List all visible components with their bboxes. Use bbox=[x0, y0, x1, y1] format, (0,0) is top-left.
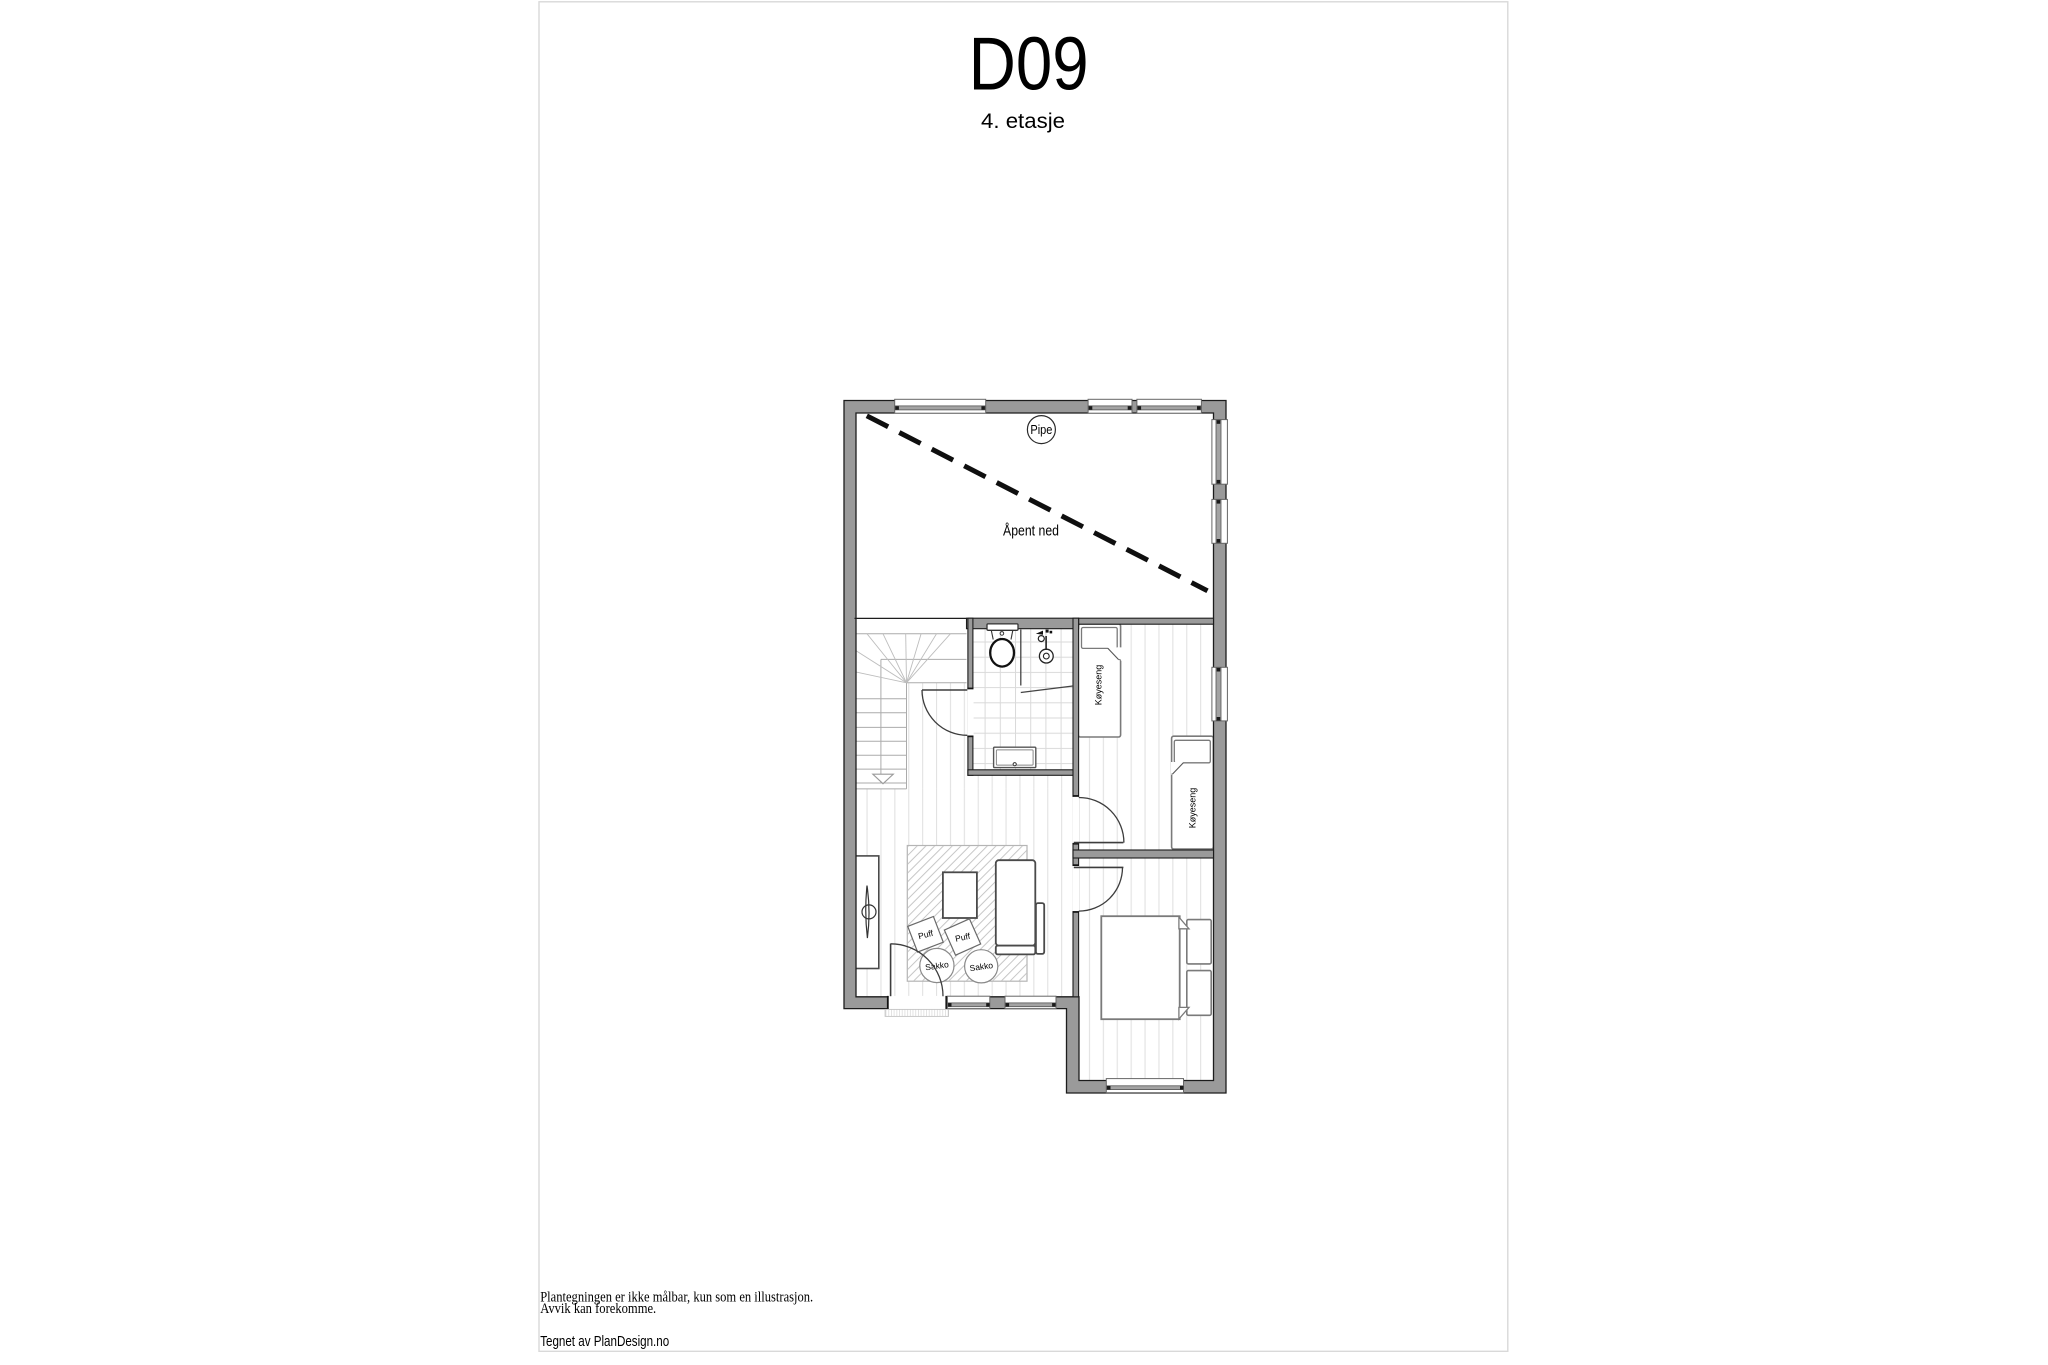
svg-text:4. etasje: 4. etasje bbox=[981, 110, 1065, 133]
svg-text:Pipe: Pipe bbox=[1030, 422, 1052, 437]
svg-text:Køyeseng: Køyeseng bbox=[1094, 665, 1104, 706]
svg-text:Køyeseng: Køyeseng bbox=[1187, 788, 1197, 829]
svg-text:Avvik kan forekomme.: Avvik kan forekomme. bbox=[540, 1301, 656, 1317]
svg-text:Åpent ned: Åpent ned bbox=[1003, 523, 1059, 540]
svg-text:D09: D09 bbox=[969, 22, 1089, 106]
svg-text:Tegnet av PlanDesign.no: Tegnet av PlanDesign.no bbox=[540, 1334, 669, 1350]
